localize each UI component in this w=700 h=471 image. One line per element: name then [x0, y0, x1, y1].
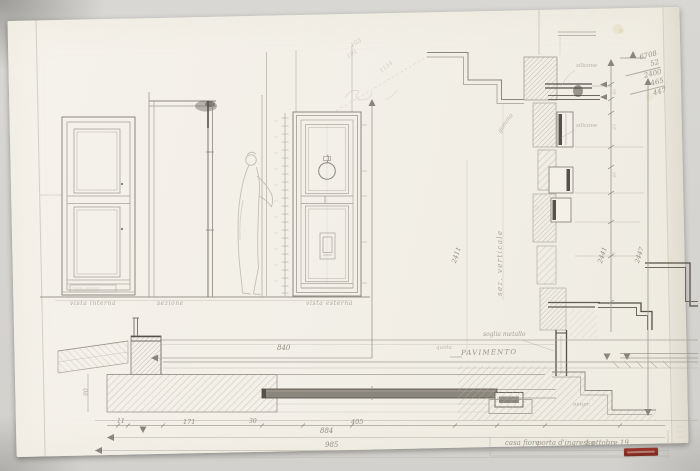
note-pavimento: PAVIMENTO [461, 349, 517, 357]
dim-884: 884 [320, 428, 333, 435]
note-vertical-section: sez. verticale [497, 230, 504, 296]
view-label-section: sezione [157, 301, 184, 307]
note-silicone-1: silicone [576, 64, 597, 70]
view-label-interior: vista interna [70, 301, 116, 307]
note-gomma: gomma [497, 113, 515, 135]
dim-tick-46: 46 [613, 172, 618, 178]
faint-annotation-3: 1154 [379, 60, 395, 74]
annotation-layer: vista interna sezione vista esterna sogl… [0, 0, 700, 471]
pencil-calculation: 6708 52 2400 465 447 [621, 49, 667, 104]
faint-annotation-2: 101 [346, 49, 359, 60]
note-neoprene: neopr. [573, 403, 590, 409]
note-silicone-2: silicone [576, 124, 597, 130]
scanned-drawing-photo: vista interna sezione vista esterna sogl… [0, 0, 700, 471]
dim-2441: 2441 [597, 246, 608, 264]
archive-stamp [624, 448, 658, 457]
caption-project: casa fiore [505, 440, 539, 447]
dim-30: 30 [249, 419, 257, 425]
dim-171: 171 [183, 419, 195, 426]
dim-tick-40: 40 [613, 89, 618, 95]
dim-2447: 2447 [634, 246, 645, 264]
dim-tick-25: 25 [613, 124, 618, 130]
dim-985: 985 [325, 442, 338, 449]
view-label-exterior: vista esterna [306, 301, 353, 307]
dim-tick-77: 77 [613, 252, 618, 258]
caption-date: 1 ottobre 19.. [585, 440, 633, 447]
dim-11: 11 [117, 419, 125, 425]
dim-2411: 2411 [451, 246, 462, 264]
faint-annotation-1: 103 [350, 38, 363, 49]
note-threshold-metal: soglia metallo [483, 332, 526, 338]
dim-840: 840 [277, 345, 290, 352]
dim-90: 90 [84, 388, 90, 396]
dim-405: 405 [351, 419, 363, 426]
note-quota: quota [436, 346, 452, 352]
